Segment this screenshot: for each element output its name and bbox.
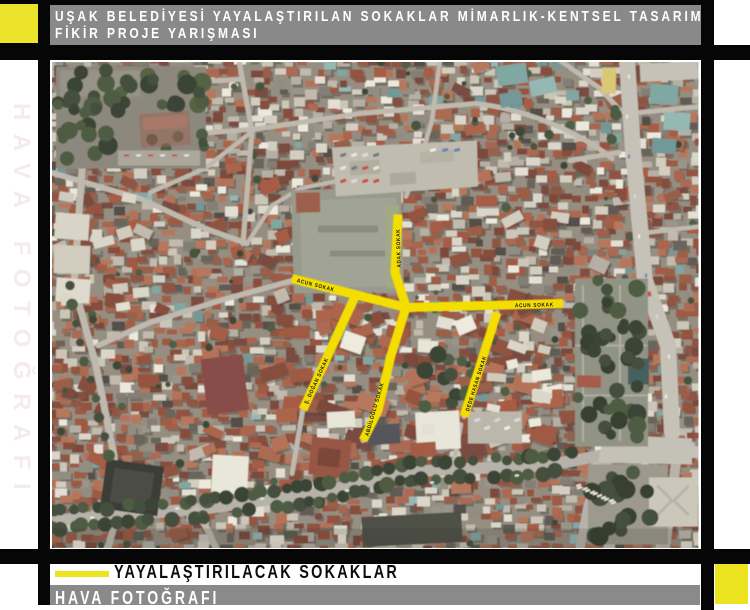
svg-text:ACUN SOKAK: ACUN SOKAK: [515, 301, 554, 308]
svg-text:ADAK SOKAK: ADAK SOKAK: [395, 228, 402, 267]
